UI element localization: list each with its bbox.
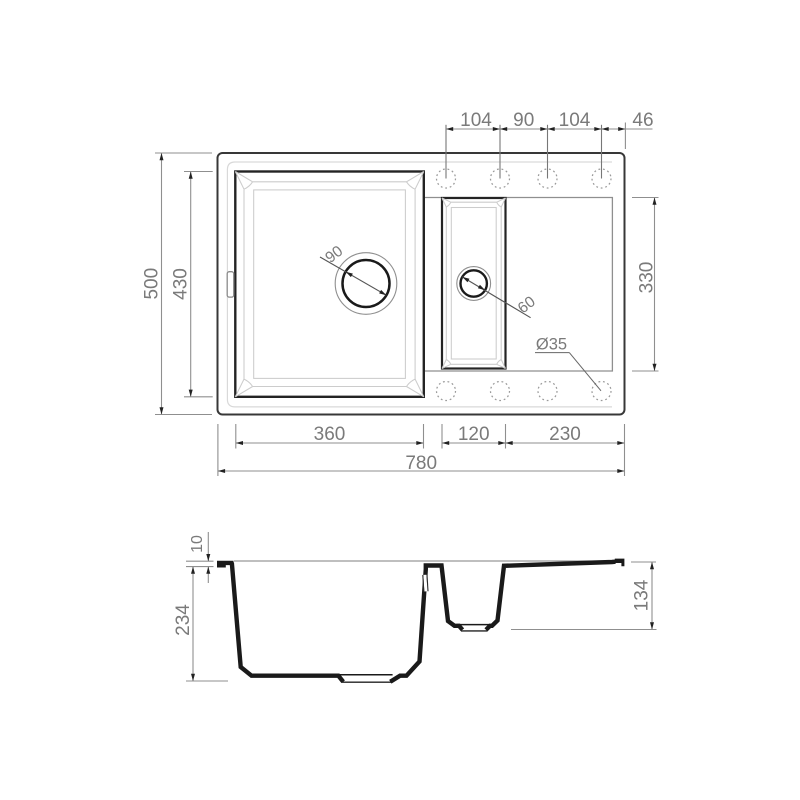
svg-text:10: 10 <box>189 535 206 553</box>
svg-text:780: 780 <box>405 453 437 474</box>
svg-text:120: 120 <box>458 424 490 445</box>
svg-text:134: 134 <box>632 579 653 611</box>
svg-text:230: 230 <box>549 424 581 445</box>
svg-text:104: 104 <box>559 110 591 131</box>
svg-text:234: 234 <box>173 604 194 636</box>
svg-text:46: 46 <box>632 110 653 131</box>
svg-text:90: 90 <box>513 110 534 131</box>
svg-text:500: 500 <box>142 268 163 300</box>
svg-text:360: 360 <box>314 424 346 445</box>
svg-text:104: 104 <box>460 110 492 131</box>
svg-text:Ø35: Ø35 <box>536 336 567 354</box>
svg-text:430: 430 <box>171 268 192 300</box>
svg-text:330: 330 <box>636 262 657 294</box>
